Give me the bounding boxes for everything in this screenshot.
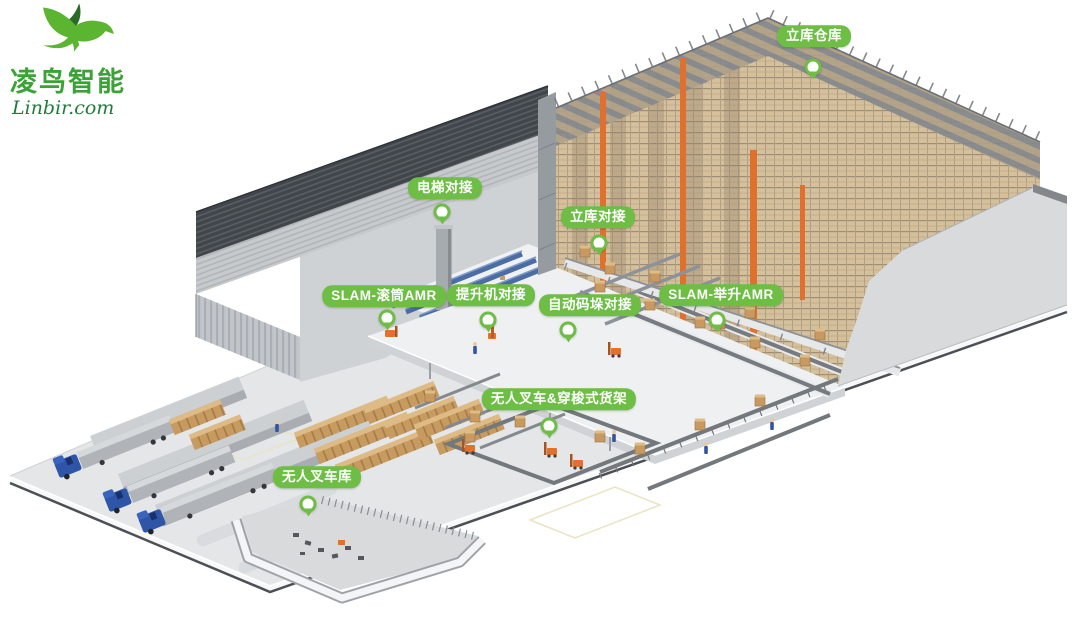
company-name: 凌鸟智能 — [10, 68, 190, 96]
map-pin-icon — [591, 235, 608, 252]
map-pin-icon — [805, 59, 822, 76]
callout-label: SLAM-滚筒AMR — [322, 285, 446, 307]
callout-label: 自动码垛对接 — [539, 294, 641, 316]
callout-label: SLAM-举升AMR — [659, 284, 783, 306]
map-pin-icon — [560, 322, 577, 339]
warehouse-diagram-page: 凌鸟智能 Linbir.com 立库仓库 电梯对接 立库对接 SLAM-滚筒AM… — [0, 0, 1080, 617]
map-pin-icon — [541, 418, 558, 435]
callout-label: 立库对接 — [561, 206, 635, 228]
callout-label: 立库仓库 — [777, 25, 851, 47]
company-website: Linbir.com — [12, 97, 190, 119]
logo: 凌鸟智能 Linbir.com — [10, 2, 190, 119]
callout-label: 无人叉车库 — [273, 466, 361, 488]
callout-label: 电梯对接 — [408, 177, 482, 199]
map-pin-icon — [434, 204, 451, 221]
bird-logo-icon — [32, 2, 118, 68]
map-pin-icon — [300, 496, 317, 513]
callout-label: 无人叉车&穿梭式货架 — [482, 388, 636, 410]
map-pin-icon — [379, 310, 396, 327]
map-pin-icon — [480, 312, 497, 329]
map-pin-icon — [709, 312, 726, 329]
callout-label: 提升机对接 — [447, 284, 535, 306]
